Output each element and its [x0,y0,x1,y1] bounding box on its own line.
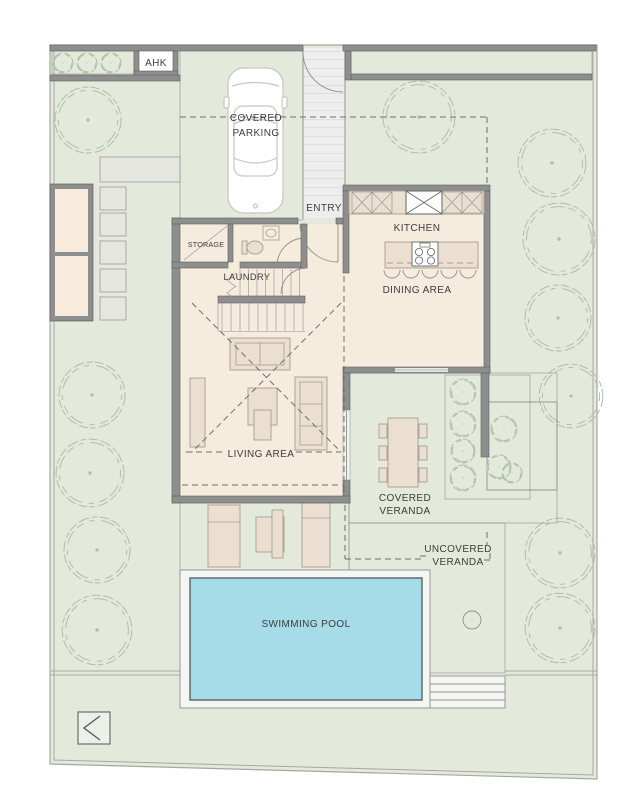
label-entry: ENTRY [306,203,342,214]
sideboard [190,378,205,447]
entry-walkway-steps [303,48,345,200]
stepping-stone [100,297,126,320]
label-covered-parking-1: COVERED [230,113,282,124]
veranda-chair [419,424,427,438]
interior-wall [172,262,228,268]
interior-wall [240,262,307,268]
label-swimming-pool: SWIMMING POOL [261,619,350,630]
swimming-pool [190,578,422,700]
label-uncovered-veranda-1: UNCOVERED [424,544,492,555]
ottoman [254,410,271,440]
floor-plan-page: COVERED PARKING ENTRY AHK [0,0,644,794]
label-storage: STORAGE [188,240,224,249]
label-ahk: AHK [145,58,167,69]
veranda-fin-wall [481,373,489,457]
label-dining-area: DINING AREA [383,285,452,296]
exterior-wall [172,218,180,503]
exterior-wall [343,185,490,191]
garden-shed-room [55,256,88,316]
label-covered-parking-2: PARKING [232,128,279,139]
side-table-top [272,510,283,558]
veranda-dining-set [379,418,427,487]
dining-table [388,418,418,487]
exterior-wall [172,496,350,503]
garden-wall [50,75,180,81]
interior-wall [301,224,307,268]
stair-wall [218,296,305,303]
north-arrow [78,712,110,744]
garden-bench [100,157,180,182]
boundary-wall [50,45,303,51]
interior-wall [343,191,349,273]
exterior-wall [336,218,343,224]
boundary-wall [343,45,596,51]
veranda-chair [419,468,427,482]
veranda-chair [379,424,387,438]
north-arrow-box [78,712,110,744]
exterior-wall [172,218,298,224]
kitchen-dining-floor [349,191,484,367]
veranda-chair [419,446,427,460]
exterior-wall [484,191,490,373]
sun-lounger [208,505,240,567]
sun-lounger [302,503,330,567]
stepping-stone [100,241,126,264]
garden-wall [351,74,592,80]
label-living-area: LIVING AREA [228,449,295,460]
label-uncovered-veranda-2: VERANDA [432,557,483,568]
garden-shed-room [55,189,88,252]
veranda-chair [379,468,387,482]
stepping-stone [100,187,126,210]
label-kitchen: KITCHEN [394,223,441,234]
car [224,68,287,213]
label-laundry: LAUNDRY [223,272,270,282]
label-covered-veranda-1: COVERED [379,493,431,504]
label-covered-veranda-2: VERANDA [379,506,430,517]
cooktop-control [420,243,430,247]
stepping-stone [100,213,126,236]
interior-wall [228,224,233,262]
toilet-tank [242,241,247,254]
stepping-stone [100,269,126,292]
floor-plan-drawing: COVERED PARKING ENTRY AHK [0,0,644,794]
veranda-chair [379,446,387,460]
garden-wall [345,51,351,80]
toilet-icon [247,241,263,254]
